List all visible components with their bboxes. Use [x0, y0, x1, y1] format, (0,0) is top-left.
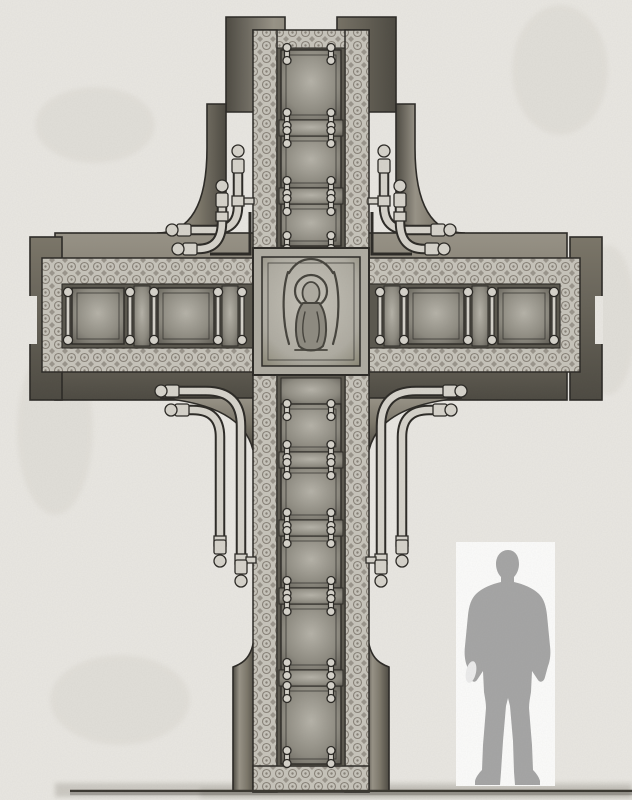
cross-elevation-drawing — [0, 0, 632, 800]
pencil-grain — [0, 0, 632, 800]
drawing-page: Design drawing of an ornamented memorial… — [0, 0, 632, 800]
